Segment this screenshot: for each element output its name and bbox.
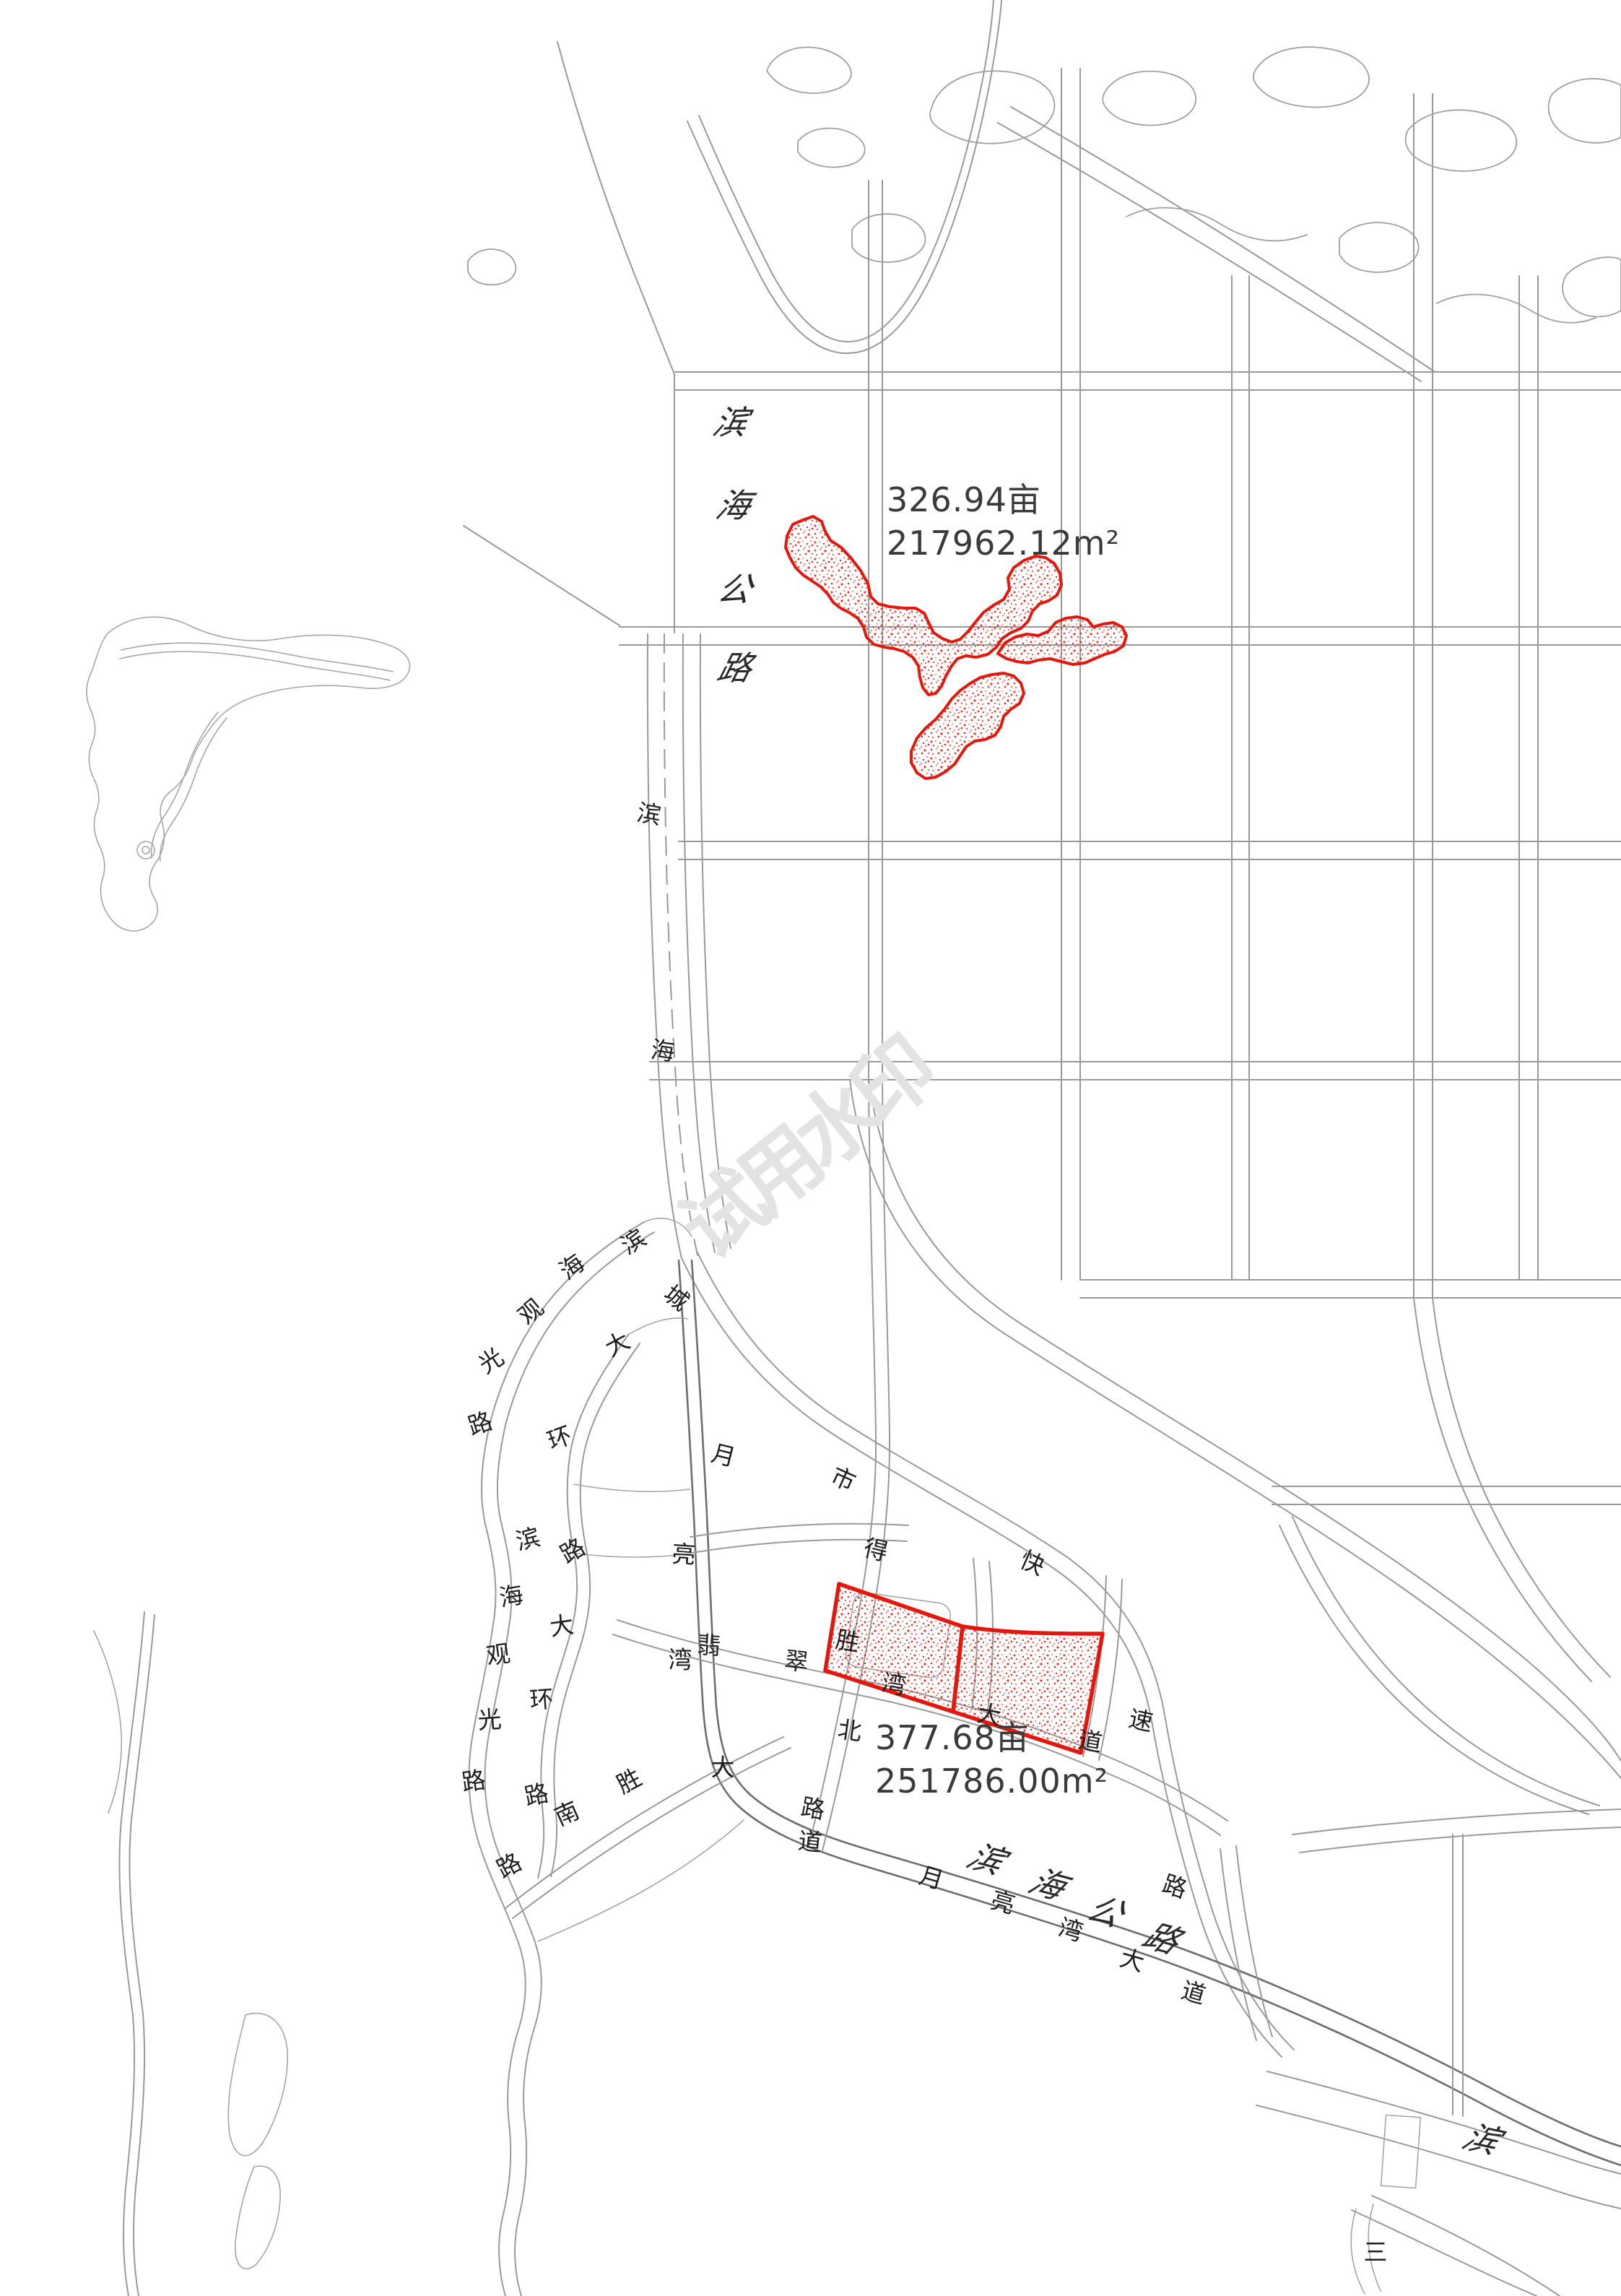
- parcel-south-label: 377.68亩 251786.00m²: [875, 1716, 1108, 1803]
- map-stage: 滨海公路滨海公路滨滨海城市快速路月亮湾大道得胜北路翡翠湾大道月亮湾大道滨海观光路…: [0, 0, 1621, 2296]
- parcel-north-label: 326.94亩 217962.12m²: [887, 478, 1120, 565]
- parcel-south-area-m2: 251786.00m²: [875, 1759, 1108, 1803]
- map-canvas: [0, 0, 1621, 2296]
- peninsula-coastline: [87, 617, 410, 931]
- road-network: [94, 0, 1621, 2296]
- parcel-north-area-mu: 326.94亩: [887, 478, 1120, 521]
- parcel-south-area-mu: 377.68亩: [875, 1716, 1108, 1759]
- parcel-north-area-m2: 217962.12m²: [887, 521, 1120, 565]
- forest-contours: [468, 47, 1621, 323]
